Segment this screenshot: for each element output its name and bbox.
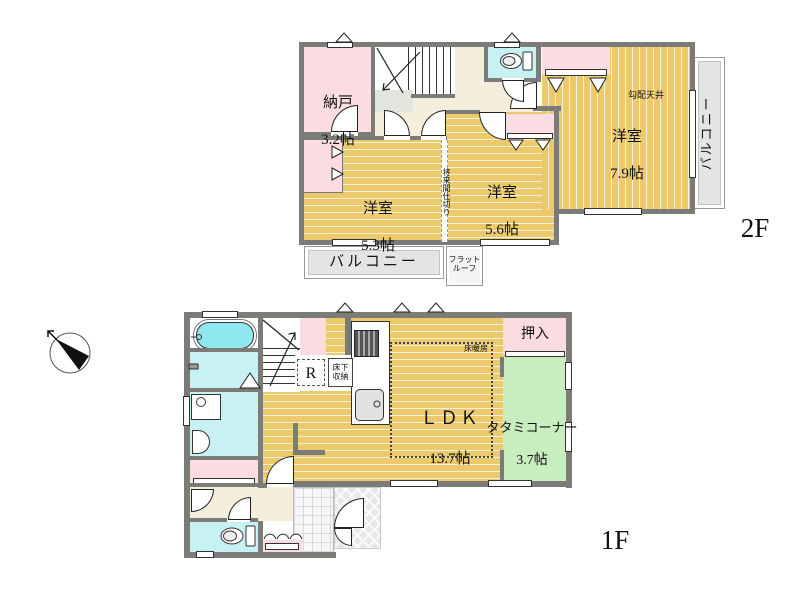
2f-center-bedroom-name: 洋室 <box>487 185 517 201</box>
2f-floor-label: 2F <box>725 212 785 245</box>
1f-tatami-label: タタミコーナー 3.7帖 <box>476 404 588 469</box>
2f-west-bedroom-name: 洋室 <box>363 201 393 217</box>
2f-east-closet-front <box>545 69 607 76</box>
1f-wall-tatami-top-seg <box>500 357 504 377</box>
1f-wall-toilet-right <box>258 521 263 558</box>
1f-bathtub <box>196 322 254 349</box>
2f-flat-roof-label: フラット ルーフ <box>447 255 482 273</box>
2f-wall-center-bedroom-top <box>445 110 480 114</box>
1f-sink <box>355 389 384 421</box>
2f-west-bedroom-size: 5.3帖 <box>361 238 395 254</box>
2f-window-toilet-top <box>494 42 520 48</box>
2f-wall-stairs-bottom <box>411 94 455 98</box>
1f-stove <box>354 330 379 357</box>
2f-window-center-bottom <box>480 239 550 246</box>
2f-center-bedroom-label: 洋室 5.6帖 <box>464 166 540 239</box>
1f-shoe-closet-front <box>265 543 299 550</box>
1f-ldk-size: 13.7帖 <box>429 451 470 467</box>
2f-understair-closet <box>375 90 413 112</box>
1f-window-bath-top <box>202 311 238 318</box>
1f-refrigerator-label: R <box>297 364 325 384</box>
2f-west-bedroom-label: 洋室 5.3帖 <box>340 182 416 255</box>
2f-center-bedroom-size: 5.6帖 <box>485 222 519 238</box>
2f-east-bedroom-label: 洋室 7.9帖 <box>589 110 665 183</box>
2f-center-closet-front <box>507 133 553 139</box>
chevron-up-icon <box>337 303 353 312</box>
1f-wall-bath-wash <box>190 348 258 352</box>
2f-wall-toilet-left <box>484 42 488 82</box>
2f-toilet-floor <box>486 45 536 80</box>
1f-stairs-side-closet <box>300 318 326 355</box>
1f-window-toilet-bottom <box>196 551 214 558</box>
2f-window-storeroom-top <box>327 42 353 48</box>
1f-toilet-floor <box>190 521 258 552</box>
1f-tatami-size: 3.7帖 <box>516 453 548 468</box>
1f-window-ldk-bottom-1 <box>390 480 438 487</box>
2f-storeroom-label: 納戸 3.2帖 <box>302 76 374 149</box>
2f-stairs-treads <box>402 45 455 95</box>
2f-doorgap-west <box>384 136 410 140</box>
1f-washing-machine <box>191 394 221 420</box>
1f-washroom-floor <box>190 352 258 392</box>
chevron-up-icon <box>504 33 520 42</box>
2f-sloped-ceiling-label: 勾配天井 <box>610 90 682 101</box>
2f-window-east-bottom <box>584 208 642 215</box>
1f-wall-leftcol-divider <box>258 315 263 487</box>
2f-window-east-right <box>689 90 696 178</box>
1f-tatami-name: タタミコーナー <box>486 420 577 435</box>
2f-wall-toilet-closet-divider <box>536 42 541 82</box>
1f-wall-kitchen <box>345 315 351 355</box>
floor-plan: 将来間仕切り 納戸 3.2帖 洋室 5.3帖 洋室 5.6帖 洋室 7.9帖 勾… <box>0 0 800 600</box>
1f-underfloor-storage-label: 床下 収納 <box>328 363 353 381</box>
compass-north-arrow <box>48 331 90 373</box>
2f-east-bedroom-name: 洋室 <box>612 129 642 145</box>
chevron-up-icon <box>336 33 352 42</box>
2f-storeroom-name: 納戸 <box>323 95 353 111</box>
1f-window-tatami-right-1 <box>565 362 572 390</box>
chevron-up-icon <box>428 303 444 312</box>
2f-balcony-bottom-label: バルコニー <box>306 253 442 271</box>
2f-storeroom-size: 3.2帖 <box>321 132 355 148</box>
1f-window-ldk-bottom-2 <box>488 480 532 487</box>
1f-window-laundry-left <box>183 396 190 426</box>
2f-future-partition-label: 将来間仕切り <box>438 152 451 232</box>
1f-wall-wash-laundry <box>190 388 258 392</box>
2f-east-bedroom-size: 7.9帖 <box>610 166 644 182</box>
1f-oshiire-label: 押入 <box>503 326 567 343</box>
1f-wall-corridor-h <box>293 450 325 455</box>
1f-wall-top <box>184 312 572 318</box>
chevron-up-icon <box>394 303 410 312</box>
1f-wall-laundry-closet <box>190 456 258 460</box>
2f-wall-mid-vertical <box>554 110 559 245</box>
1f-wall-closet-hall <box>190 483 258 487</box>
2f-balcony-right-label: バルコニー <box>699 83 719 183</box>
1f-floor-label: 1F <box>585 524 645 557</box>
1f-floor-heating-label: 床暖房 <box>430 344 488 353</box>
1f-ldk-name: ＬＤＫ <box>420 408 480 428</box>
2f-wall-hall-corner <box>533 106 561 111</box>
